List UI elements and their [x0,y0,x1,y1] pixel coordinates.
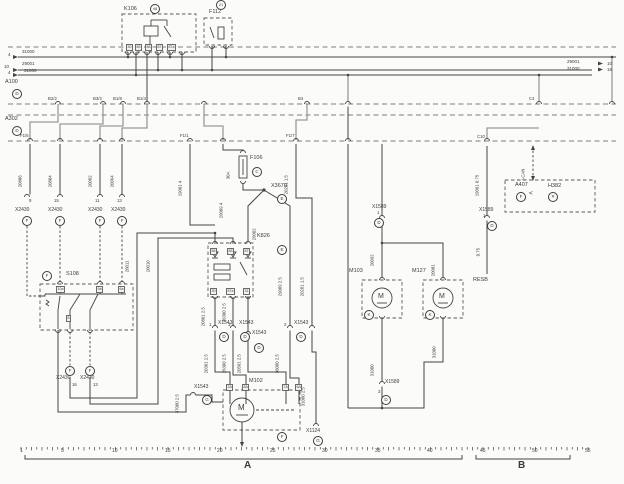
m103-ref: K [364,310,374,320]
wire-label-20301: 20301 2.5 [205,354,209,373]
x1589-ref-3: D [487,221,497,231]
module-a407-label: A407 [515,183,528,189]
ruler-45: 45 [480,449,486,454]
bus-wire-29001-left: 29001 [22,62,35,67]
connector-x1543-label-5: X1543 [194,385,208,390]
module-a100-label: A100 [5,80,18,86]
pin-num-13b: 13 [93,383,98,387]
m102-ref: F [277,432,287,442]
dashed-wires [27,146,533,366]
switch-s108-label: S108 [66,272,79,278]
ruler-30: 30 [322,449,328,454]
bus-track-4b: 4 [8,71,11,76]
relay-k826-label: K826 [257,234,270,240]
section-brackets [25,455,570,459]
ruler-1: 1 [20,449,23,454]
bus-track-4a: 4 [8,53,11,58]
connector-x2430-label-2: X2430 [48,208,62,213]
x1543-ref-1: D [219,332,229,342]
wire-label-19001: 19001 4 [179,181,183,197]
splice-x3670-dot [262,188,265,191]
wire-label-20884: 20884 [49,175,53,187]
m102-pin-3a: 3A [226,384,233,391]
k826-pin-87: 87 [243,248,250,255]
a407-plug-arrow: < [529,191,533,198]
wire-label-ican: I-CAN [522,169,526,181]
pin-f1-1: F1/1 [180,134,189,138]
wire-label-30a: 30A [227,172,231,180]
pin-num-13: 13 [117,199,122,203]
m127-ref: K [425,310,435,320]
x2430-ref-1: F [22,216,32,226]
ruler-20: 20 [217,449,223,454]
k826-pin-86: 86 [210,248,217,255]
bus-wire-31000-left: 31000 [22,50,35,55]
bus-wire-29001-right: 29001 [567,60,580,65]
wire-label-20801: 20801 2.5 [202,307,206,326]
k826-pin-87a: 87a [226,288,235,295]
motor-m102-letter: M [238,404,245,412]
k826-ref: E [277,245,287,255]
wire-label-31000b: 31000 [371,364,375,376]
pin-num-15: 15 [54,199,59,203]
x2430-ref-5: F [65,366,75,376]
pin-num-11: 11 [95,199,99,203]
pin-num-1a: 1 [377,211,379,215]
pin-c10: C10 [477,135,485,139]
motor-m127-label: M127 [412,269,426,275]
k826-pin-30: 30 [210,288,217,295]
wire-label-20082: 20082 [89,175,93,187]
connector-x2430-label-1: X2430 [15,208,29,213]
motor-m103-letter: M [378,293,384,300]
connector-x2430-label-3: X2430 [88,208,102,213]
m102-pin-7a: 7A [282,384,289,391]
f106-ref: C [252,167,262,177]
pin-b4: B4 [298,97,303,101]
pin-c4: C4 [529,97,535,101]
wire-label-26300: 26300 2.5 [223,354,227,373]
wire-label-20501: 20501 2.5 [238,354,242,373]
connector-x1589-label-1: X1589 [372,205,386,210]
k106-pin-86: 86 [145,44,152,51]
wire-label-37000: 37000 2.5 [176,394,180,413]
schematic-canvas [0,0,624,484]
x2430-ref-6: F [85,366,95,376]
k826-pin-31: 31 [243,288,250,295]
x2430-ref-2: F [55,216,65,226]
connector-x1543-label-2: X1543 [239,321,253,326]
pin-b2-2: B2/2 [48,97,57,101]
pin-num-3a: 3 [378,390,380,394]
connector-pins [25,46,615,426]
wire-runs [18,46,616,442]
ruler-10: 10 [112,449,118,454]
bus-wire-31000-left2: 31000 [24,69,37,74]
section-b-label: B [518,461,525,471]
grid-ruler [21,447,588,451]
pin-f1-7: F1/7 [286,134,295,138]
wire-label-20201b: 20201 1.5 [301,277,305,296]
fuse-f106-label: F106 [250,156,263,162]
pin-num-1b: 1 [483,214,485,218]
section-a-label: A [244,461,251,471]
pin-num-x1543-2: 2 [284,323,286,327]
x2430-ref-4: F [117,216,127,226]
ruler-15: 15 [165,449,171,454]
x1543-ref-4: D [254,343,264,353]
wire-label-20081: 20081 [432,264,436,276]
s108-pin-10a: 10a [56,286,65,293]
x1124-ref: G [313,436,323,446]
connector-x2430-label-5: X2430 [56,376,70,381]
wire-label-20010: 20010 [147,260,151,272]
section-a-bracket [25,455,462,459]
ruler-40: 40 [427,449,433,454]
pin-num-x1543-3: 3 [228,323,230,327]
bus-wire-31000-right: 31000 [567,67,580,72]
wire-label-20092: 20092 [371,254,375,266]
wire-label-29009b: 29009 2.5 [279,277,283,296]
s108-ref: F [42,271,52,281]
a407-ref: F [516,192,526,202]
h382-lamp-symbol: ✕ [548,192,558,202]
s108-pin-6a: 6a [118,286,125,293]
k106-pin-30: 30 [126,44,133,51]
relay-k106-label: K106 [124,7,137,13]
s108-pin-8: 8 [66,315,71,322]
connector-x2430-label-6: X2430 [80,376,94,381]
section-b-bracket [476,455,570,459]
wire-label-20201a: 20201 1.5 [285,175,289,194]
x3670-ref: E [277,194,287,204]
x1589-ref-1: D [374,218,384,228]
wire-label-19061: 19061 0.75 [476,175,480,197]
resb-label: RESB [473,278,488,284]
wire-label-29009: 29009 4 [220,203,224,219]
x1543-ref-3: D [296,332,306,342]
wire-label-20886: 20886 [19,175,23,187]
pin-b3-2: B3/2 [93,97,102,101]
connector-x1589-label-2: X1589 [385,380,399,385]
lamp-h382-label: H382 [548,184,561,190]
module-boundaries [8,47,616,141]
ruler-ticks [21,447,588,451]
wire-label-36000: 36000 2.5 [276,354,280,373]
flow-arrows [13,55,603,447]
fuse-f112-label: F112 [209,10,221,16]
connector-x1589-label-3: X1589 [479,208,493,213]
ruler-5: 5 [61,449,64,454]
ruler-50: 50 [532,449,538,454]
wire-label-20094: 20094 [111,175,115,187]
pin-num-x1543-1: 1 [209,323,211,327]
pin-f1-5: F1/5 [20,134,29,138]
m102-pin-8a: 8A [242,384,249,391]
connector-x1543-label-4: X1543 [252,331,266,336]
pin-b1-4: B1/4 [137,97,146,101]
m102-ground-arrow [240,442,244,447]
x1589-ref-2: D [381,395,391,405]
motor-m127-letter: M [439,293,445,300]
wiring-diagram-page: K106F112A100A302S108K826F106X3670M102M10… [0,0,624,484]
wire-label-075: 0.75 [477,248,481,256]
x1543-ref-2: D [240,332,250,342]
x1543-ref-5: G [202,395,212,405]
wire-label-36300: 36300 2.5 [223,303,227,322]
ruler-35: 35 [375,449,381,454]
motor-m102-label: M102 [249,379,263,385]
k106-track-ref: 48 [150,4,160,14]
pin-num-16: 16 [72,383,77,387]
pin-b1-8: B1/8 [113,97,122,101]
connector-x2430-label-4: X2430 [111,208,125,213]
s108-pin-9a: 9a [96,286,103,293]
motor-m103-label: M103 [349,269,363,275]
module-a302-label: A302 [5,117,18,123]
f112-track-ref: 21 [216,0,226,10]
bus-track-10b: 10 [607,62,612,67]
wire-label-31000c: 31000 [433,346,437,358]
a302-page-ref: D [12,126,22,136]
k106-pin-87: 87 [156,44,163,51]
wire-label-20011: 20011 [126,261,130,273]
a100-page-ref: D [12,89,22,99]
m102-pin-6a: 6A [295,384,302,391]
x2430-ref-3: F [95,216,105,226]
k826-pin-85: 85 [227,248,234,255]
k106-pin-87a: 87a [167,44,176,51]
ruler-55: 55 [585,449,591,454]
connector-x1124-label: X1124 [306,429,320,434]
pin-num-9: 9 [29,199,31,203]
wire-label-29002: 29002 [253,228,257,240]
ruler-25: 25 [270,449,276,454]
k106-pin-85: 85 [135,44,142,51]
bus-track-15: 15 [607,68,612,73]
connector-x1543-label-3: X1543 [294,321,308,326]
bus-track-10a: 10 [4,65,9,70]
